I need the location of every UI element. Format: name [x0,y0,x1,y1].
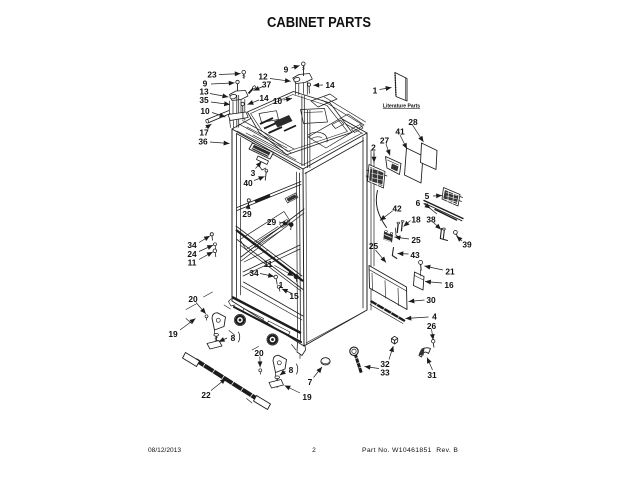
svg-text:23: 23 [207,69,217,79]
svg-text:20: 20 [188,294,198,304]
svg-text:30: 30 [426,295,436,305]
svg-text:7: 7 [308,377,313,387]
svg-text:Literature Parts: Literature Parts [383,103,420,109]
svg-text:14: 14 [259,93,269,103]
svg-text:8: 8 [231,333,236,343]
svg-text:2: 2 [371,142,376,152]
svg-text:39: 39 [462,239,472,249]
svg-text:36: 36 [198,136,208,146]
svg-text:26: 26 [427,321,437,331]
svg-text:6: 6 [416,198,421,208]
svg-text:28: 28 [408,117,418,127]
svg-text:CABINET PARTS: CABINET PARTS [267,13,371,30]
svg-text:19: 19 [302,392,312,402]
svg-text:29: 29 [267,217,277,227]
svg-text:1: 1 [373,85,378,95]
svg-text:20: 20 [254,348,264,358]
svg-text:11: 11 [188,257,197,267]
svg-text:1: 1 [279,280,284,290]
svg-text:08/12/2013: 08/12/2013 [148,447,181,454]
svg-text:40: 40 [243,178,253,188]
svg-text:25: 25 [369,241,379,251]
svg-text:42: 42 [392,203,402,213]
svg-text:3: 3 [251,168,256,178]
svg-text:11: 11 [264,259,273,269]
svg-text:8: 8 [289,365,294,375]
svg-text:33: 33 [380,367,390,377]
svg-text:21: 21 [445,266,455,276]
svg-text:4: 4 [432,311,437,321]
svg-text:25: 25 [411,235,421,245]
svg-text:43: 43 [410,250,420,260]
svg-text:2: 2 [312,447,316,454]
svg-text:27: 27 [380,135,390,145]
svg-text:22: 22 [201,390,211,400]
svg-text:29: 29 [242,209,252,219]
svg-text:Part No. W10461851 Rev. B: Part No. W10461851 Rev. B [362,447,458,454]
svg-text:37: 37 [262,79,272,89]
svg-text:16: 16 [444,280,454,290]
svg-text:18: 18 [411,214,421,224]
svg-text:38: 38 [426,214,436,224]
svg-text:34: 34 [249,268,259,278]
svg-text:15: 15 [289,291,299,301]
svg-text:5: 5 [425,191,430,201]
svg-text:14: 14 [325,80,335,90]
svg-text:31: 31 [427,370,437,380]
svg-text:35: 35 [199,95,209,105]
svg-text:10: 10 [200,106,210,116]
svg-text:9: 9 [284,64,289,74]
svg-text:10: 10 [273,96,283,106]
svg-text:19: 19 [168,329,178,339]
svg-text:41: 41 [395,126,405,136]
